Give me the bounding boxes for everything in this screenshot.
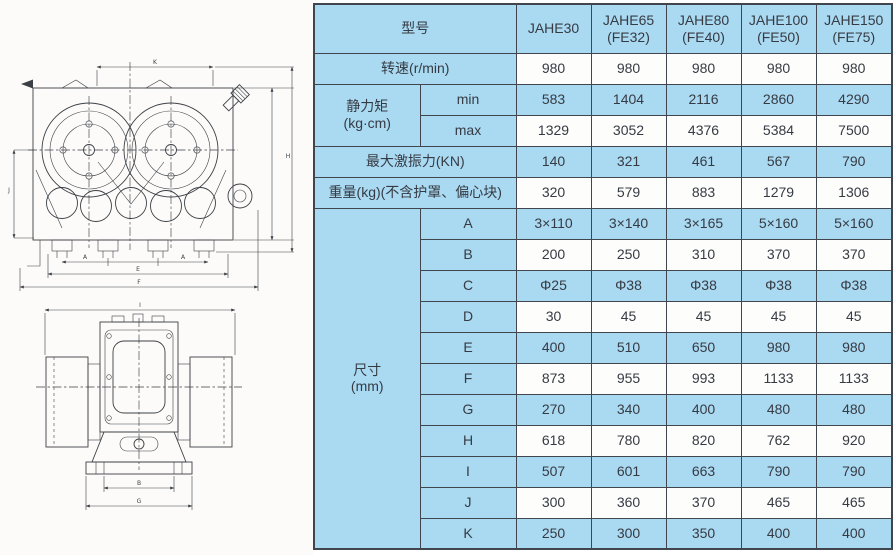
spec-value: 1133 <box>816 363 892 394</box>
spec-value: 790 <box>816 146 892 177</box>
spec-value: 1133 <box>741 363 816 394</box>
spec-row: 最大激振力(KN)140321461567790 <box>314 146 892 177</box>
spec-value: 663 <box>666 456 741 487</box>
spec-value: 618 <box>516 425 591 456</box>
spec-value: 3×165 <box>666 208 741 239</box>
spec-value: 45 <box>741 301 816 332</box>
spec-value: 250 <box>516 518 591 549</box>
row-label: F <box>420 363 516 394</box>
right-weight-cylinder <box>178 357 232 447</box>
spec-value: 370 <box>741 239 816 270</box>
spec-row: 转速(r/min)980980980980980 <box>314 53 892 84</box>
spec-value: Φ38 <box>591 270 666 301</box>
spec-value: 980 <box>816 332 892 363</box>
group-label: 尺寸 (mm) <box>314 208 420 549</box>
row-label: D <box>420 301 516 332</box>
row-label: B <box>420 239 516 270</box>
spec-table-body: 型号JAHE30JAHE65 (FE32)JAHE80 (FE40)JAHE10… <box>314 4 892 549</box>
row-label: I <box>420 456 516 487</box>
spec-value: 200 <box>516 239 591 270</box>
spec-value: 360 <box>591 487 666 518</box>
svg-text:I: I <box>139 302 141 309</box>
spec-table-panel: 型号JAHE30JAHE65 (FE32)JAHE80 (FE40)JAHE10… <box>313 0 893 555</box>
spec-value: 980 <box>741 53 816 84</box>
dim-front-right: H <box>215 67 294 252</box>
spec-value: 465 <box>741 487 816 518</box>
spec-value: 883 <box>666 177 741 208</box>
vibrator-drawing: K A A E <box>0 0 313 555</box>
spec-value: 45 <box>816 301 892 332</box>
spec-value: 567 <box>741 146 816 177</box>
svg-text:A: A <box>181 254 186 261</box>
spec-value: Φ38 <box>816 270 892 301</box>
spec-value: 820 <box>666 425 741 456</box>
spec-value: Φ38 <box>666 270 741 301</box>
spec-value: 1306 <box>816 177 892 208</box>
spec-value: 790 <box>741 456 816 487</box>
svg-text:B: B <box>137 480 141 487</box>
spec-value: 5×160 <box>741 208 816 239</box>
spec-value: 370 <box>816 239 892 270</box>
spec-value: 1329 <box>516 115 591 146</box>
spec-value: 400 <box>816 518 892 549</box>
spec-value: 480 <box>816 394 892 425</box>
row-label: G <box>420 394 516 425</box>
spec-value: 321 <box>591 146 666 177</box>
dim-front-e: E <box>48 254 228 278</box>
spec-value: 310 <box>666 239 741 270</box>
spec-value: 350 <box>666 518 741 549</box>
row-label: 转速(r/min) <box>314 53 516 84</box>
grease-fitting <box>221 85 249 113</box>
spec-value: 250 <box>591 239 666 270</box>
side-boss <box>228 184 252 208</box>
spec-value: 300 <box>516 487 591 518</box>
model-header-row: 型号JAHE30JAHE65 (FE32)JAHE80 (FE40)JAHE10… <box>314 4 892 53</box>
spec-value: 780 <box>591 425 666 456</box>
spec-value: 1279 <box>741 177 816 208</box>
dim-front-a: A A <box>62 254 208 266</box>
spec-value: 5×160 <box>816 208 892 239</box>
row-label: max <box>420 115 516 146</box>
row-label: A <box>420 208 516 239</box>
spec-value: 400 <box>666 394 741 425</box>
spec-value: 3×140 <box>591 208 666 239</box>
model-name: JAHE65 (FE32) <box>591 4 666 53</box>
spec-value: 980 <box>591 53 666 84</box>
svg-text:G: G <box>137 498 142 505</box>
dim-side-top: I <box>45 302 235 355</box>
dim-front-left: J <box>7 150 34 238</box>
row-label: min <box>420 84 516 115</box>
spec-value: 993 <box>666 363 741 394</box>
spec-value: Φ25 <box>516 270 591 301</box>
spec-value: 2116 <box>666 84 741 115</box>
spec-value: 1404 <box>591 84 666 115</box>
group-label: 静力矩 (kg·cm) <box>314 84 420 146</box>
spec-value: 370 <box>666 487 741 518</box>
spec-value: 465 <box>816 487 892 518</box>
row-label: H <box>420 425 516 456</box>
spec-value: 400 <box>741 518 816 549</box>
spec-row: 静力矩 (kg·cm)min5831404211628604290 <box>314 84 892 115</box>
spec-value: 4290 <box>816 84 892 115</box>
spec-value: 4376 <box>666 115 741 146</box>
spec-value: 650 <box>666 332 741 363</box>
spec-value: 3×110 <box>516 208 591 239</box>
spec-value: 300 <box>591 518 666 549</box>
row-label: 重量(kg)(不含护罩、偏心块) <box>314 177 516 208</box>
model-name: JAHE80 (FE40) <box>666 4 741 53</box>
spec-value: 980 <box>516 53 591 84</box>
spec-value: 400 <box>516 332 591 363</box>
spec-value: 140 <box>516 146 591 177</box>
spec-value: 579 <box>591 177 666 208</box>
spec-value: 7500 <box>816 115 892 146</box>
spec-value: 480 <box>741 394 816 425</box>
row-label: J <box>420 487 516 518</box>
spec-value: 873 <box>516 363 591 394</box>
left-weight-cylinder <box>46 357 100 447</box>
spec-value: 920 <box>816 425 892 456</box>
north-flag-mark <box>21 80 33 89</box>
spec-value: 790 <box>816 456 892 487</box>
spec-value: 2860 <box>741 84 816 115</box>
spec-table: 型号JAHE30JAHE65 (FE32)JAHE80 (FE40)JAHE10… <box>313 3 893 550</box>
spec-value: 507 <box>516 456 591 487</box>
svg-text:E: E <box>136 266 140 273</box>
row-label: 最大激振力(KN) <box>314 146 516 177</box>
svg-text:A: A <box>83 254 88 261</box>
spec-value: Φ38 <box>741 270 816 301</box>
spec-row: 尺寸 (mm)A3×1103×1403×1655×1605×160 <box>314 208 892 239</box>
spec-value: 3052 <box>591 115 666 146</box>
dim-side-b: B <box>104 476 174 492</box>
spec-value: 320 <box>516 177 591 208</box>
spec-value: 340 <box>591 394 666 425</box>
datasheet-page: K A A E <box>0 0 893 555</box>
svg-text:H: H <box>286 153 291 160</box>
spec-value: 270 <box>516 394 591 425</box>
spec-row: 重量(kg)(不含护罩、偏心块)32057988312791306 <box>314 177 892 208</box>
technical-drawing-panel: K A A E <box>0 0 313 555</box>
model-header-label: 型号 <box>314 4 516 53</box>
spec-value: 45 <box>666 301 741 332</box>
row-label: C <box>420 270 516 301</box>
spec-value: 5384 <box>741 115 816 146</box>
dim-front-top: K <box>97 59 213 86</box>
row-label: K <box>420 518 516 549</box>
spec-value: 583 <box>516 84 591 115</box>
spec-value: 762 <box>741 425 816 456</box>
dim-front-f: F <box>20 210 258 291</box>
spec-value: 510 <box>591 332 666 363</box>
svg-text:J: J <box>7 187 10 194</box>
spec-value: 980 <box>666 53 741 84</box>
spec-value: 30 <box>516 301 591 332</box>
side-view-drawing: I <box>36 302 242 510</box>
spec-value: 601 <box>591 456 666 487</box>
spec-value: 955 <box>591 363 666 394</box>
spec-value: 461 <box>666 146 741 177</box>
svg-text:F: F <box>137 279 141 286</box>
model-name: JAHE30 <box>516 4 591 53</box>
spec-value: 980 <box>741 332 816 363</box>
model-name: JAHE100 (FE50) <box>741 4 816 53</box>
spec-value: 45 <box>591 301 666 332</box>
model-name: JAHE150 (FE75) <box>816 4 892 53</box>
row-label: E <box>420 332 516 363</box>
front-view-drawing: K A A E <box>7 59 294 291</box>
svg-text:K: K <box>153 59 158 66</box>
spec-value: 980 <box>816 53 892 84</box>
